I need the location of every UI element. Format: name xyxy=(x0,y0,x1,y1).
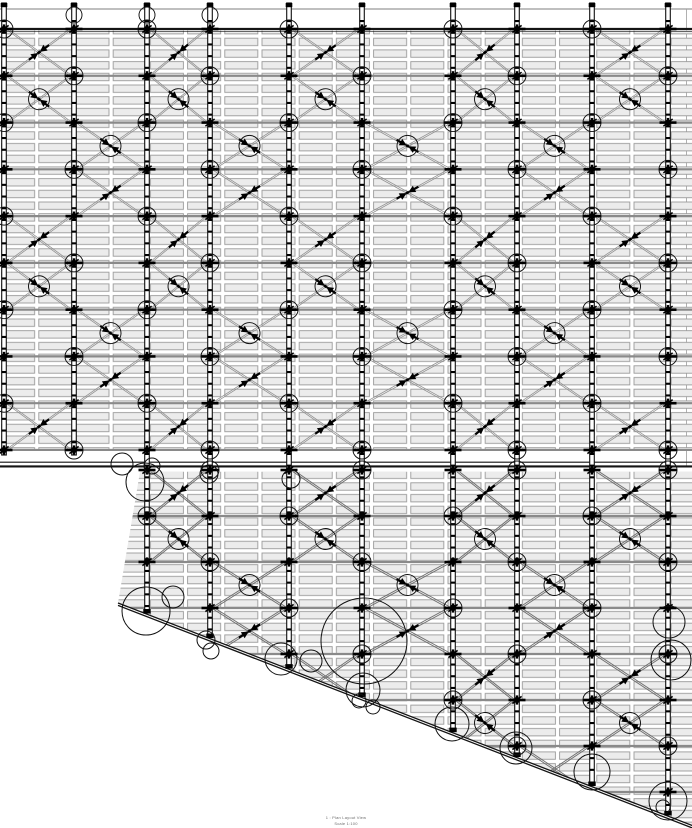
post-base xyxy=(449,728,456,733)
post-base xyxy=(588,782,595,787)
post-cap xyxy=(450,3,457,7)
post-cap xyxy=(286,3,293,7)
plan-drawing xyxy=(0,0,692,828)
post-cap xyxy=(514,3,521,7)
view-title-line2: Scale 1:100 xyxy=(0,821,692,826)
post xyxy=(358,3,365,697)
post-cap xyxy=(589,3,596,7)
post xyxy=(206,3,213,638)
post xyxy=(285,3,292,669)
post-base xyxy=(143,609,150,614)
post xyxy=(513,3,520,757)
post-cap xyxy=(665,3,672,7)
post xyxy=(71,3,78,455)
view-title: 1 : Plan Layout View Scale 1:100 xyxy=(0,815,692,826)
plank-field xyxy=(0,31,692,452)
post-cap xyxy=(1,3,8,7)
post-base xyxy=(285,664,292,669)
plan-svg xyxy=(0,0,692,828)
scaffolding-plan-sheet: 1 : Plan Layout View Scale 1:100 xyxy=(0,0,692,828)
post-cap xyxy=(359,3,366,7)
top-bay-field xyxy=(0,28,692,451)
post xyxy=(449,3,456,732)
post xyxy=(1,3,8,455)
